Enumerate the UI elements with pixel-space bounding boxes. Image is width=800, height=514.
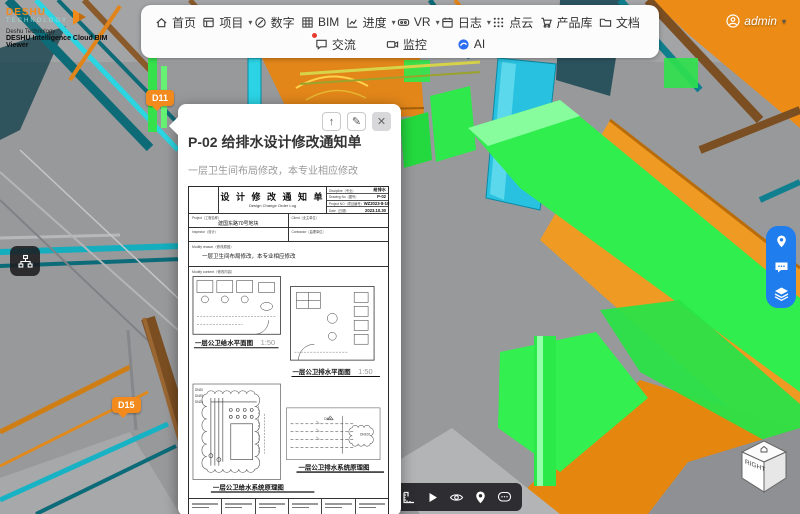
- doc-content-section: Modify content（修改内容）: [189, 267, 388, 274]
- sitemap-icon: [18, 254, 33, 269]
- change-notice-popup: ↑ ✎ ✕ P-02 给排水设计修改通知单 一层卫生间布局修改，本专业相应修改 …: [178, 104, 401, 514]
- doc-reason-section: Modify reason（修改原因） 一层卫生间布局修改，本专业相应修改: [189, 242, 388, 267]
- comment-button[interactable]: [497, 488, 512, 506]
- svg-text:DN100: DN100: [360, 433, 370, 437]
- cart-icon: [540, 16, 553, 29]
- svg-text:一层公卫给水平面图: 一层公卫给水平面图: [195, 338, 254, 347]
- nav-digital[interactable]: 数字: [254, 14, 300, 31]
- user-avatar-icon: [726, 14, 740, 28]
- share-button[interactable]: ↑: [322, 112, 341, 131]
- layers-icon: [774, 286, 789, 301]
- location-pin-icon: [473, 490, 488, 505]
- digital-pen-icon: [254, 16, 267, 29]
- nav-pointcloud[interactable]: 点云: [492, 14, 538, 31]
- visibility-button[interactable]: [449, 488, 464, 506]
- app: DESHU TECHNOLOGY Deshu Technology DESHU …: [0, 0, 800, 514]
- svg-text:1:50: 1:50: [261, 338, 276, 347]
- home-icon: [155, 16, 168, 29]
- chat-bubble-icon: [497, 490, 512, 505]
- doc-info-row: Inspector（设计） Contractor（监理单位）: [189, 228, 388, 242]
- ruler-icon: [401, 490, 416, 505]
- svg-text:DN25: DN25: [195, 394, 203, 398]
- brand-tagline: TECHNOLOGY: [6, 18, 68, 25]
- navbar-row-1: 首页 项目▾ 数字 BIM 进度▾ VR▾: [155, 10, 645, 34]
- nav-project[interactable]: 项目▾: [202, 14, 252, 31]
- svg-text:一层公卫给水系统原理图: 一层公卫给水系统原理图: [213, 482, 285, 491]
- folder-icon: [599, 16, 612, 29]
- nav-bim[interactable]: BIM: [301, 15, 344, 29]
- view-cube[interactable]: RIGHT: [734, 432, 794, 500]
- nav-chat[interactable]: 交流: [315, 36, 356, 53]
- bim-grid-icon: [301, 16, 314, 29]
- bottom-toolbar: [382, 483, 522, 511]
- svg-text:DN50: DN50: [324, 417, 332, 421]
- comments-button[interactable]: [772, 258, 790, 276]
- measure-button[interactable]: [401, 488, 416, 506]
- close-button[interactable]: ✕: [372, 112, 391, 131]
- app-title: DESHU Intelligence Cloud BIM Viewer: [6, 35, 126, 49]
- nav-products[interactable]: 产品库: [540, 14, 598, 31]
- svg-text:一层公卫排水系统原理图: 一层公卫排水系统原理图: [298, 463, 370, 472]
- notification-badge: [311, 32, 318, 39]
- right-tool-panel: [766, 226, 796, 308]
- brand-arrow-icon: [71, 9, 91, 25]
- camera-icon: [386, 38, 399, 51]
- chat-icon: [315, 38, 328, 51]
- play-icon: [425, 490, 440, 505]
- comment-icon: [774, 260, 789, 275]
- vr-goggles-icon: [397, 16, 410, 29]
- issue-marker-d15[interactable]: D15: [112, 397, 141, 413]
- popup-subtitle: 一层卫生间布局修改，本专业相应修改: [188, 162, 391, 177]
- calendar-icon: [441, 16, 454, 29]
- nav-progress[interactable]: 进度▾: [346, 14, 396, 31]
- pin-icon: [774, 234, 789, 249]
- issue-marker-d11[interactable]: D11: [146, 90, 174, 106]
- doc-drawings: 一层公卫给水平面图 1:50 一层公卫排水: [189, 274, 388, 498]
- doc-title-en: Design Change Order Log: [224, 203, 320, 208]
- design-change-doc-preview[interactable]: 设 计 修 改 通 知 单 Design Change Order Log Di…: [188, 186, 389, 514]
- point-cloud-icon: [492, 16, 505, 29]
- ai-icon: [457, 38, 470, 51]
- nav-monitor[interactable]: 监控: [386, 36, 427, 53]
- popup-title: P-02 给排水设计修改通知单: [188, 132, 391, 152]
- nav-log[interactable]: 日志▾: [441, 14, 491, 31]
- nav-home[interactable]: 首页: [155, 14, 201, 31]
- locate-button[interactable]: [473, 488, 488, 506]
- nav-ai[interactable]: AI: [457, 37, 485, 51]
- doc-header: 设 计 修 改 通 知 单 Design Change Order Log Di…: [189, 187, 388, 214]
- project-icon: [202, 16, 215, 29]
- brand-logo: DESHU TECHNOLOGY Deshu Technology DESHU …: [6, 8, 126, 49]
- svg-text:一层公卫排水平面图: 一层公卫排水平面图: [292, 367, 351, 376]
- layers-button[interactable]: [772, 284, 790, 302]
- signature-strip: [189, 498, 388, 514]
- doc-info-row: Project（工程名称）建国东路70号地块 Client（业主单位）: [189, 214, 388, 228]
- svg-text:1:50: 1:50: [358, 367, 373, 376]
- svg-text:DN20: DN20: [195, 388, 203, 392]
- navbar-row-2: 交流 监控 AI: [155, 34, 645, 54]
- progress-chart-icon: [346, 16, 359, 29]
- doc-meta-table: Discipline（专业）给排水 Drawing No（图号）P-02 Pro…: [326, 187, 388, 213]
- model-tree-button[interactable]: [10, 246, 40, 276]
- user-caret: ▾: [782, 17, 786, 26]
- doc-logo-cell: [189, 187, 219, 213]
- nav-vr[interactable]: VR▾: [397, 15, 440, 29]
- user-menu[interactable]: admin ▾: [726, 14, 786, 28]
- locate-pin-button[interactable]: [772, 232, 790, 250]
- edit-button[interactable]: ✎: [347, 112, 366, 131]
- play-button[interactable]: [425, 488, 440, 506]
- main-navbar: 首页 项目▾ 数字 BIM 进度▾ VR▾: [141, 5, 659, 58]
- nav-docs[interactable]: 文档: [599, 14, 645, 31]
- popup-actions: ↑ ✎ ✕: [322, 112, 391, 131]
- doc-title-cn: 设 计 修 改 通 知 单: [219, 190, 326, 203]
- user-name: admin: [744, 14, 777, 28]
- eye-icon: [449, 490, 464, 505]
- brand-name: DESHU: [6, 8, 68, 18]
